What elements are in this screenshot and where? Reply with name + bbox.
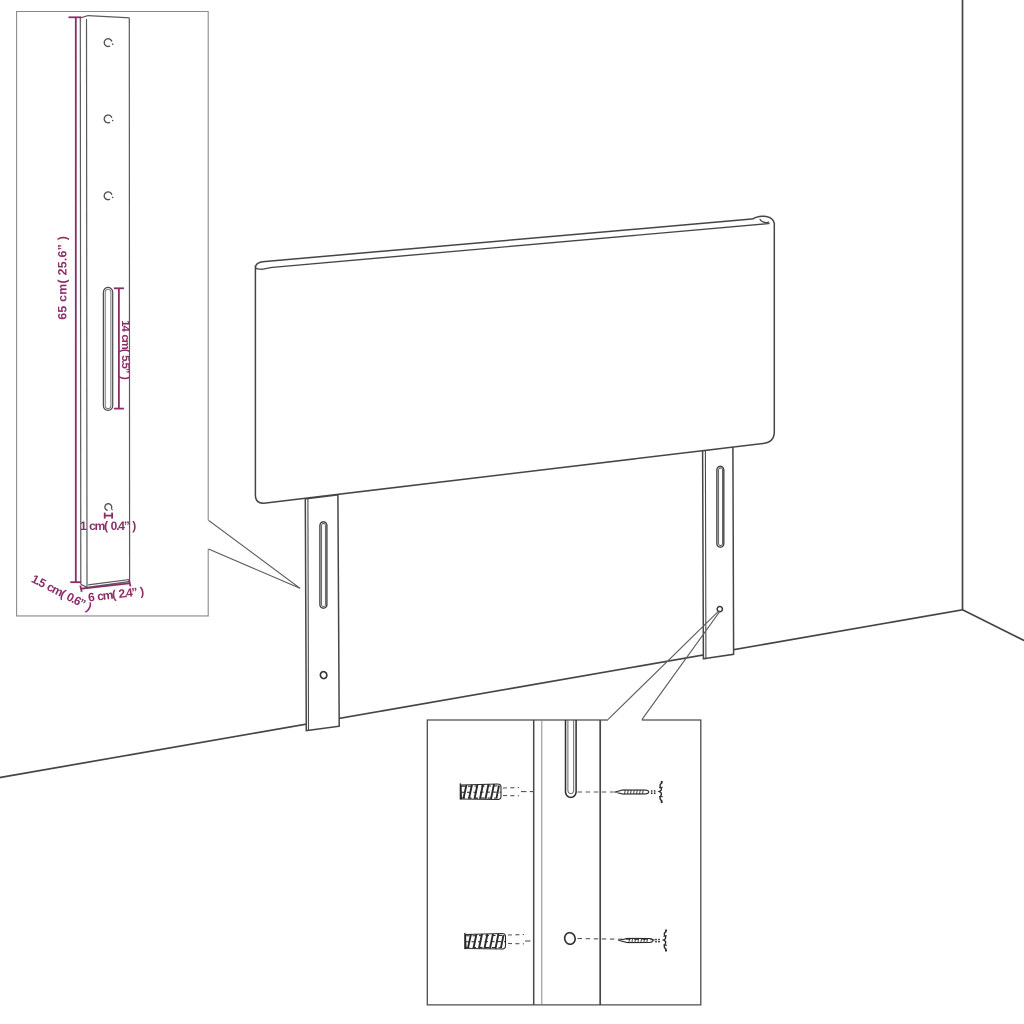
svg-text:1 cm( 0.4” ): 1 cm( 0.4” ) [80,519,136,533]
svg-text:65 cm( 25.6” ): 65 cm( 25.6” ) [55,236,69,320]
svg-text:14 cm( 5.5” ): 14 cm( 5.5” ) [119,320,131,380]
